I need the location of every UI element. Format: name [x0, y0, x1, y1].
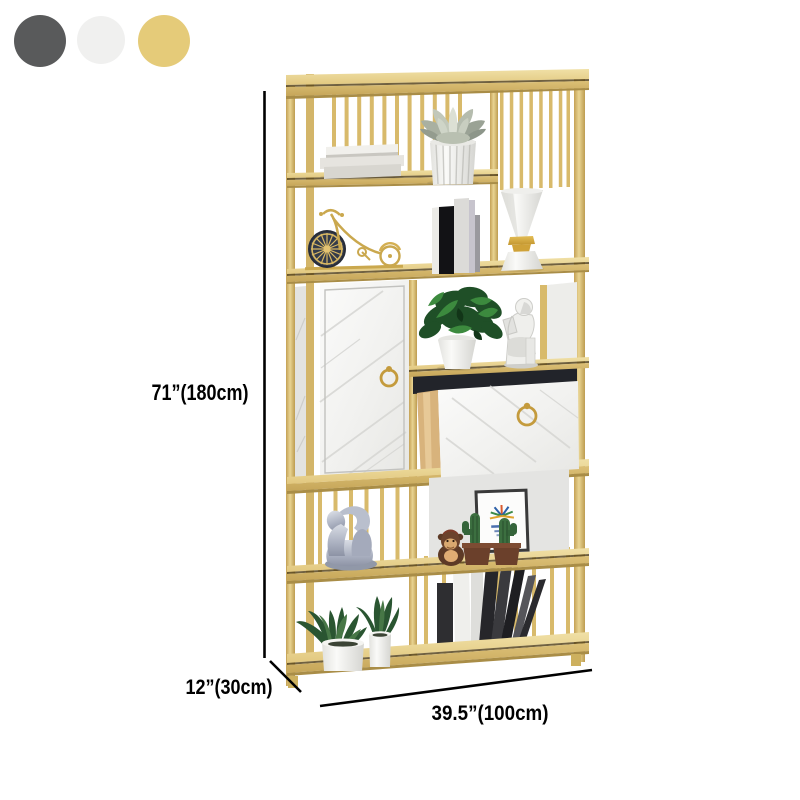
svg-text:39.5”(100cm): 39.5”(100cm)	[432, 701, 549, 725]
svg-text:71”(180cm): 71”(180cm)	[152, 380, 249, 405]
svg-text:12”(30cm): 12”(30cm)	[186, 676, 273, 699]
